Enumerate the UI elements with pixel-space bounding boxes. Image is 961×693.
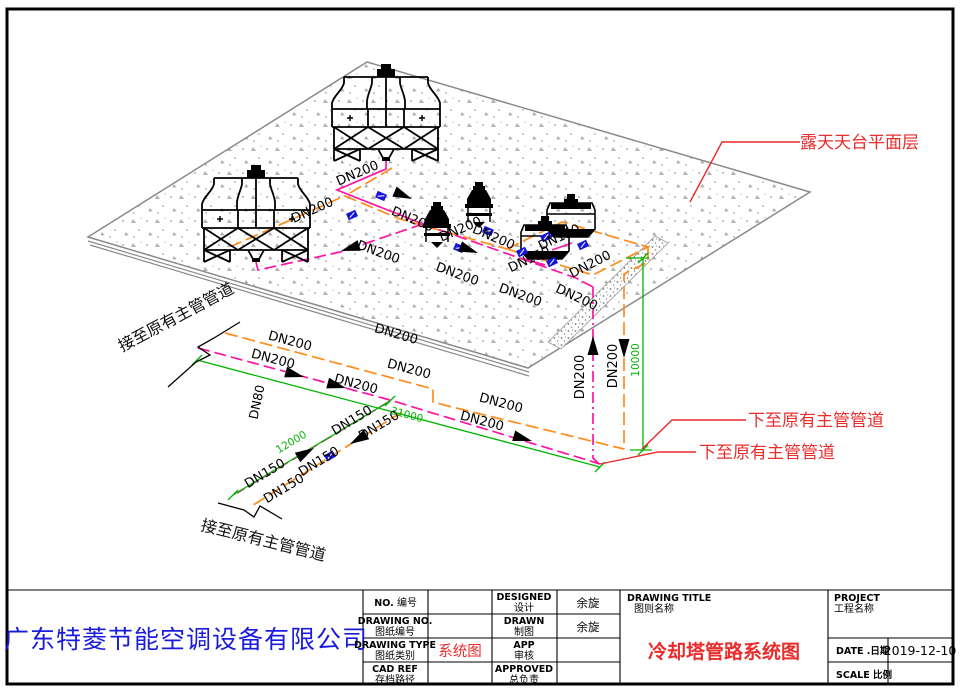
drawing-type-value: 系统图 (438, 643, 482, 660)
leader-line (600, 452, 696, 464)
drawn-label-en: DRAWN (504, 616, 545, 627)
connect-existing-annotation: 接至原有主管管道 (199, 515, 328, 564)
company-name: 广东特菱节能空调设备有限公司 (4, 625, 368, 654)
connect-existing-annotation: 接至原有主管管道 (115, 279, 237, 356)
pipe-size-label: DN150 (296, 444, 342, 480)
drawing-no-label-en: DRAWING NO. (358, 616, 433, 627)
cad-ref-label-cn: 存档路径 (375, 673, 415, 686)
designed-label-en: DESIGNED (497, 592, 552, 603)
cad-sheet: DN200 DN200 DN200 DN200 DN200 DN200 DN20… (0, 0, 961, 693)
roof-level-annotation: 露天天台平面层 (800, 133, 919, 153)
drawing-no-label-cn: 图纸编号 (375, 625, 415, 638)
drawing-type-label-en: DRAWING TYPE (354, 640, 436, 651)
titleblock: 广东特菱节能空调设备有限公司 NO. 编号 DRAWING NO. 图纸编号 D… (4, 592, 956, 686)
supply-pipe-lower (225, 333, 624, 449)
drawing-canvas: DN200 DN200 DN200 DN200 DN200 DN200 DN20… (0, 0, 961, 693)
flow-arrow-icon (588, 336, 599, 355)
project-label-cn: 工程名称 (834, 602, 874, 615)
down-to-main-annotation: 下至原有主管管道 (699, 443, 835, 463)
no-label-en: NO. (374, 598, 393, 609)
pipe-size-label: DN80 (246, 383, 268, 420)
date-label: DATE .日期 (836, 645, 889, 657)
pipe-size-label: DN200 (266, 329, 313, 355)
pipe-size-label: DN200 (606, 344, 621, 389)
designed-value: 余旋 (577, 596, 600, 610)
app-label-cn: 审核 (514, 649, 534, 662)
pipe-size-label: DN200 (477, 391, 524, 417)
drawing-type-label-cn: 图纸类别 (375, 649, 415, 662)
date-value: 2019-12-10 (884, 643, 957, 658)
dimension-label: 10000 (630, 343, 642, 376)
no-label-cn: 编号 (397, 596, 417, 609)
break-symbol (218, 503, 282, 519)
project-label-en: PROJECT (834, 593, 880, 604)
cad-ref-label-en: CAD REF (372, 664, 418, 675)
drawing-title-label-en: DRAWING TITLE (627, 593, 711, 604)
drawing-title-label-cn: 图则名称 (634, 602, 674, 615)
approved-label-cn: 总负责 (509, 673, 539, 686)
drawing-title-value: 冷却塔管路系统图 (648, 640, 800, 663)
down-to-main-annotation: 下至原有主管管道 (748, 411, 884, 431)
break-symbol (168, 322, 240, 387)
drawn-value: 余旋 (577, 620, 600, 634)
drawn-label-cn: 制图 (514, 625, 534, 638)
approved-label-en: APPROVED (495, 664, 553, 675)
designed-label-cn: 设计 (514, 601, 534, 614)
scale-label: SCALE 比例 (836, 669, 892, 681)
pipe-size-label: DN200 (573, 355, 588, 400)
app-label-en: APP (513, 640, 534, 651)
pipe-size-label: DN200 (332, 372, 379, 398)
